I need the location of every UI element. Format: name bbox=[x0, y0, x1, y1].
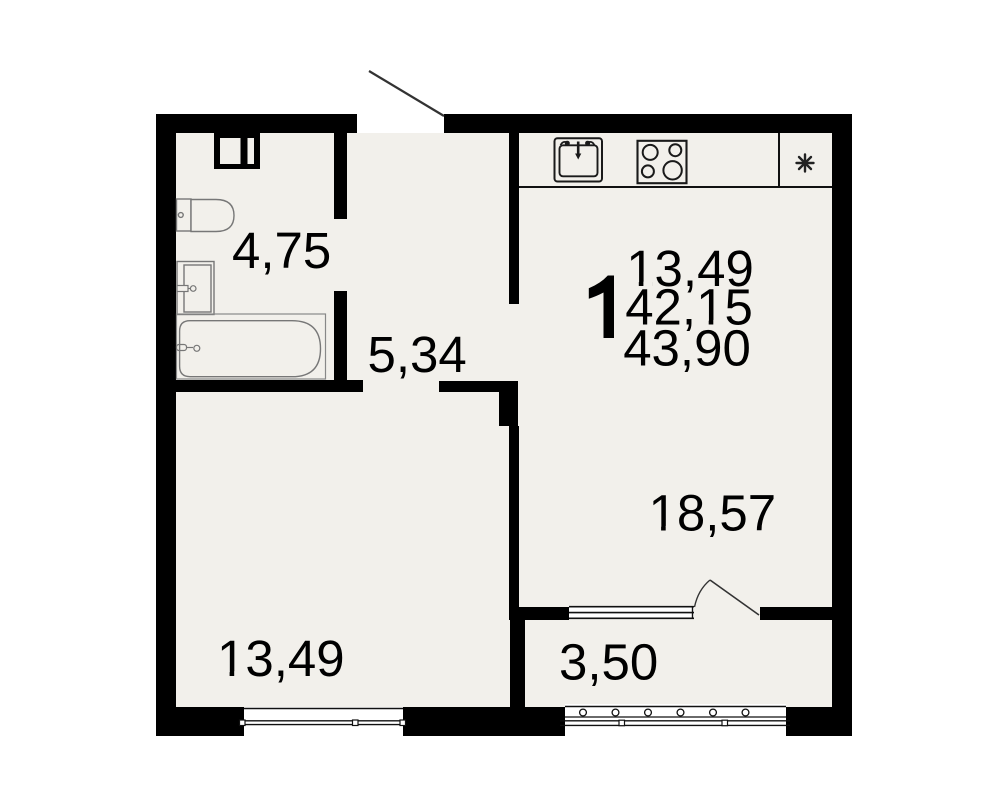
svg-text:13,49: 13,49 bbox=[217, 630, 345, 687]
svg-text:43,90: 43,90 bbox=[623, 320, 751, 377]
svg-text:3,50: 3,50 bbox=[559, 633, 658, 690]
svg-text:4,75: 4,75 bbox=[232, 222, 331, 279]
svg-text:18,57: 18,57 bbox=[649, 484, 777, 541]
svg-text:5,34: 5,34 bbox=[368, 326, 467, 383]
